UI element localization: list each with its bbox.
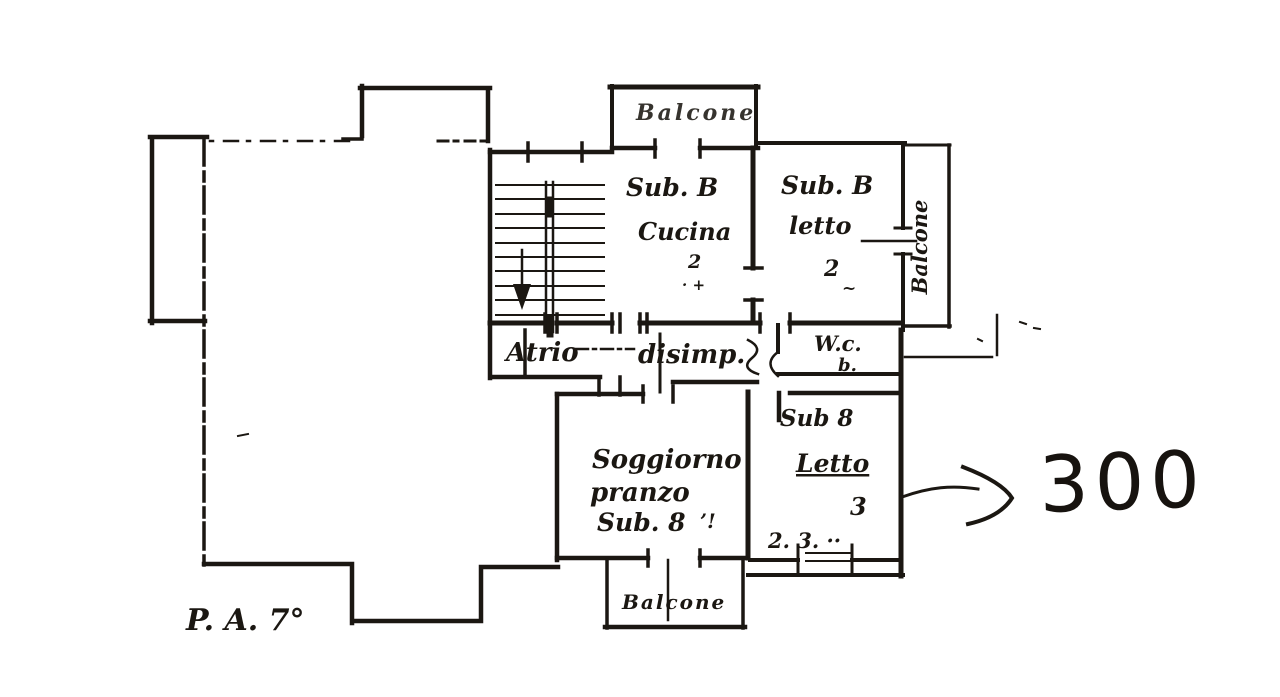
floorplan-scan: Balcone Sub. B Cucina 2 · + Sub. B letto… — [0, 0, 1280, 697]
bedroom2-number: 3 — [850, 492, 867, 521]
price-arrow-icon — [902, 467, 1012, 524]
kitchen-name-label: Cucina — [638, 217, 731, 246]
living-label-line2: pranzo — [590, 478, 690, 508]
bedroom1-marks: ~ — [842, 279, 856, 299]
kitchen-bedroom1-divider — [745, 148, 762, 323]
floor-label: P. A. 7° — [185, 603, 305, 638]
bedroom2-dimension: 2. 3. ·· — [767, 528, 841, 553]
main-top-walls — [490, 140, 905, 161]
living-label-line3: Sub. 8 — [597, 508, 686, 537]
balcony-top-label: Balcone — [635, 100, 756, 126]
bedroom2-name-label: Letto — [795, 449, 869, 478]
living-label-line1: Soggiorno — [592, 445, 742, 475]
balcony-right-label: Balcone — [907, 200, 932, 296]
wc-label: W.c. — [814, 331, 862, 356]
kitchen-marks: · + — [682, 276, 705, 294]
price-annotation: 300 — [1038, 435, 1208, 531]
kitchen-sub-label: Sub. B — [626, 173, 718, 202]
living-marks: ’! — [700, 509, 716, 533]
floorplan-drawing: Balcone Sub. B Cucina 2 · + Sub. B letto… — [0, 0, 1280, 697]
kitchen-number: 2 — [687, 251, 701, 273]
wc-sub-label: b. — [838, 355, 857, 376]
hall-label: Atrio — [503, 338, 579, 368]
corridor-label: disimp. — [638, 340, 745, 370]
balcony-bottom-label: Balcone — [621, 590, 726, 614]
bedroom2-sub-label: Sub 8 — [780, 405, 853, 432]
bedroom1-name-label: letto — [789, 211, 852, 240]
balcony-right-walls — [862, 143, 950, 330]
bedroom1-sub-label: Sub. B — [781, 171, 873, 200]
bedroom1-number: 2 — [823, 256, 839, 282]
top-protrusion-walls — [343, 86, 490, 141]
left-wing-walls — [150, 137, 558, 623]
